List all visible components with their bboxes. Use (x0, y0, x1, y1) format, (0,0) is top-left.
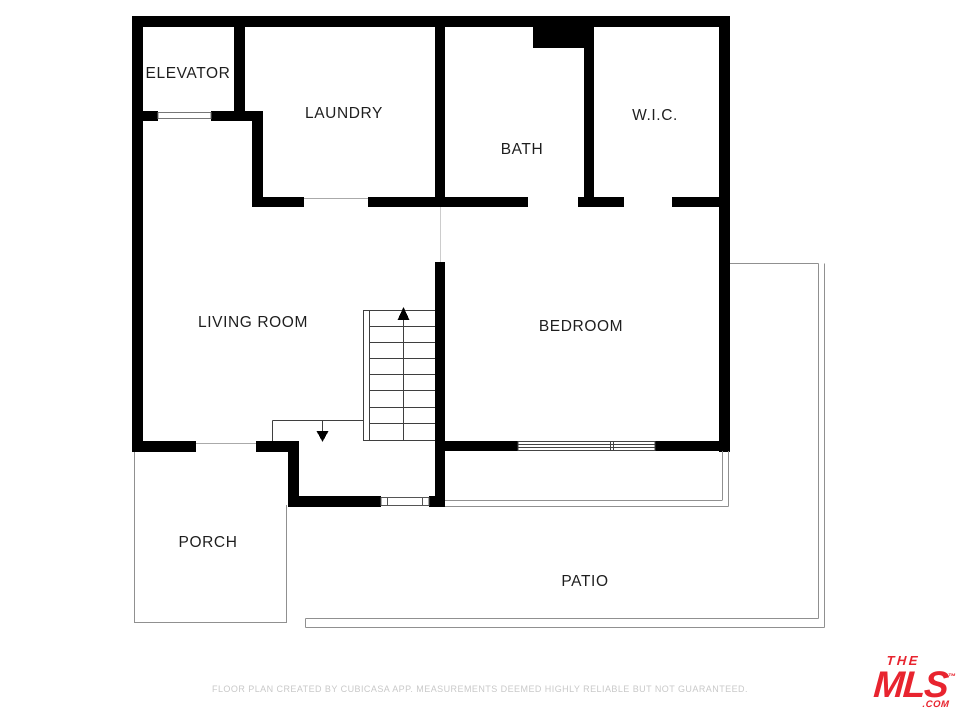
elevator-door (158, 113, 211, 119)
disclaimer-text: FLOOR PLAN CREATED BY CUBICASA APP. MEAS… (0, 684, 960, 694)
room-label-patio: PATIO (561, 573, 608, 591)
wall-mid-segment-d (672, 197, 730, 207)
wall-center-vertical (435, 262, 445, 507)
stair-rail (364, 311, 370, 441)
room-label-bedroom: BEDROOM (539, 318, 623, 336)
wall-bottom-left (132, 441, 196, 452)
logo-trademark-symbol: ™ (948, 672, 957, 681)
wall-landing-bottom-right (429, 496, 445, 507)
wall-elevator-bottom-left (143, 111, 158, 121)
door-frame (381, 498, 429, 506)
wall-laundry-right (435, 27, 445, 207)
floor-plan-page: ELEVATOR LAUNDRY BATH W.I.C. LIVING ROOM… (0, 0, 960, 720)
wall-elevator-bottom-right (211, 111, 263, 121)
wall-elevator-right (234, 16, 245, 121)
wall-bottom-right (655, 441, 730, 451)
room-label-porch: PORCH (179, 534, 238, 552)
wall-mid-segment-c (578, 197, 624, 207)
wall-left (132, 16, 143, 452)
wall-bath-right (584, 27, 594, 207)
room-label-elevator: ELEVATOR (146, 65, 231, 83)
wall-mid-segment-b (368, 197, 528, 207)
logo-mls-text: MLS™ (873, 666, 956, 703)
window-frame (518, 442, 655, 451)
wall-landing-bottom-left (288, 496, 381, 507)
wall-laundry-left (252, 121, 263, 207)
openings (158, 113, 655, 506)
stairs-up-arrow-icon (398, 307, 410, 320)
room-label-wic: W.I.C. (632, 107, 678, 125)
wall-mid-segment-a (252, 197, 304, 207)
landing-exit-door (381, 498, 429, 506)
wall-bottom-hall (435, 441, 518, 451)
stairs-down-arrow-icon (317, 431, 329, 442)
room-label-laundry: LAUNDRY (305, 105, 383, 123)
interior-walls (132, 16, 730, 507)
floor-plan-drawing (0, 0, 960, 720)
room-label-bath: BATH (501, 141, 544, 159)
bedroom-window (518, 442, 655, 451)
wall-top (132, 16, 730, 27)
wall-right (719, 16, 730, 452)
room-label-living-room: LIVING ROOM (198, 314, 308, 332)
themls-logo: THE MLS™ .COM (872, 654, 956, 710)
